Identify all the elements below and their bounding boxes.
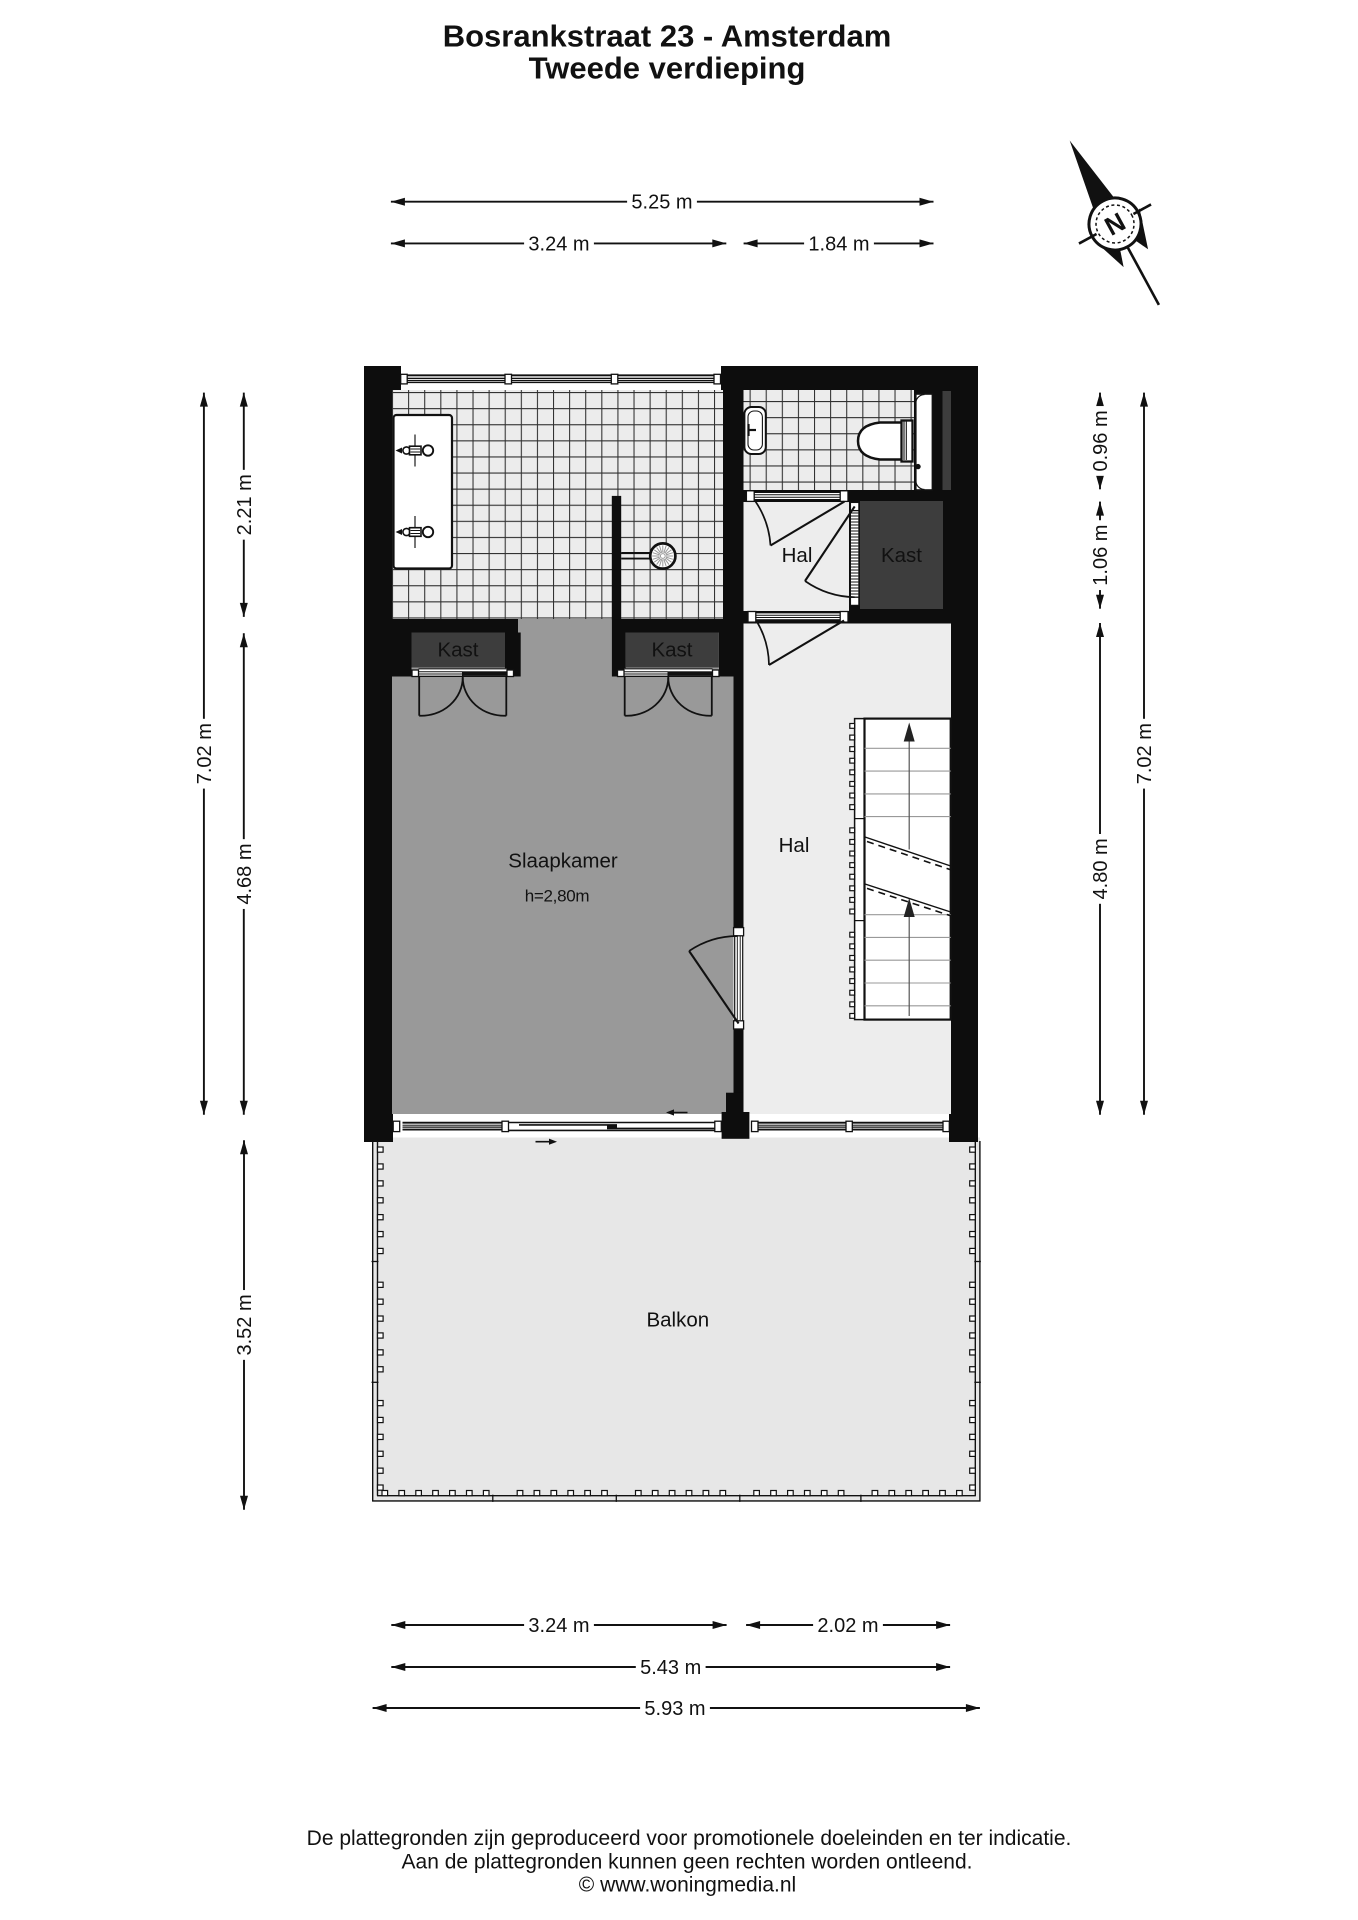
- svg-text:Hal: Hal: [779, 834, 810, 857]
- svg-text:4.68 m: 4.68 m: [234, 843, 256, 904]
- svg-text:1.84 m: 1.84 m: [808, 233, 869, 255]
- svg-text:7.02 m: 7.02 m: [1134, 723, 1156, 784]
- svg-text:Kast: Kast: [437, 639, 478, 662]
- svg-text:Kast: Kast: [651, 639, 692, 662]
- svg-text:1.06 m: 1.06 m: [1090, 525, 1112, 586]
- svg-text:Hal: Hal: [782, 544, 813, 567]
- svg-text:2.21 m: 2.21 m: [234, 474, 256, 535]
- svg-text:© www.woningmedia.nl: © www.woningmedia.nl: [579, 1874, 796, 1897]
- svg-text:h=2,80m: h=2,80m: [525, 886, 590, 905]
- svg-text:7.02 m: 7.02 m: [194, 723, 216, 784]
- svg-text:Slaapkamer: Slaapkamer: [508, 850, 618, 873]
- svg-text:3.24 m: 3.24 m: [528, 233, 589, 255]
- svg-text:5.93 m: 5.93 m: [644, 1698, 705, 1720]
- svg-text:Bosrankstraat 23 - Amsterdam: Bosrankstraat 23 - Amsterdam: [443, 19, 892, 54]
- svg-text:Balkon: Balkon: [646, 1309, 709, 1332]
- svg-text:Tweede verdieping: Tweede verdieping: [529, 51, 806, 86]
- svg-text:3.52 m: 3.52 m: [234, 1294, 256, 1355]
- svg-text:Kast: Kast: [881, 544, 922, 567]
- svg-text:Aan de plattegronden kunnen ge: Aan de plattegronden kunnen geen rechten…: [402, 1851, 973, 1874]
- svg-text:5.25 m: 5.25 m: [631, 192, 692, 214]
- svg-text:De plattegronden zijn geproduc: De plattegronden zijn geproduceerd voor …: [307, 1827, 1072, 1850]
- svg-text:2.02 m: 2.02 m: [817, 1615, 878, 1637]
- svg-text:5.43 m: 5.43 m: [640, 1657, 701, 1679]
- svg-text:3.24 m: 3.24 m: [528, 1615, 589, 1637]
- svg-text:4.80 m: 4.80 m: [1090, 838, 1112, 899]
- svg-text:0.96 m: 0.96 m: [1090, 410, 1112, 471]
